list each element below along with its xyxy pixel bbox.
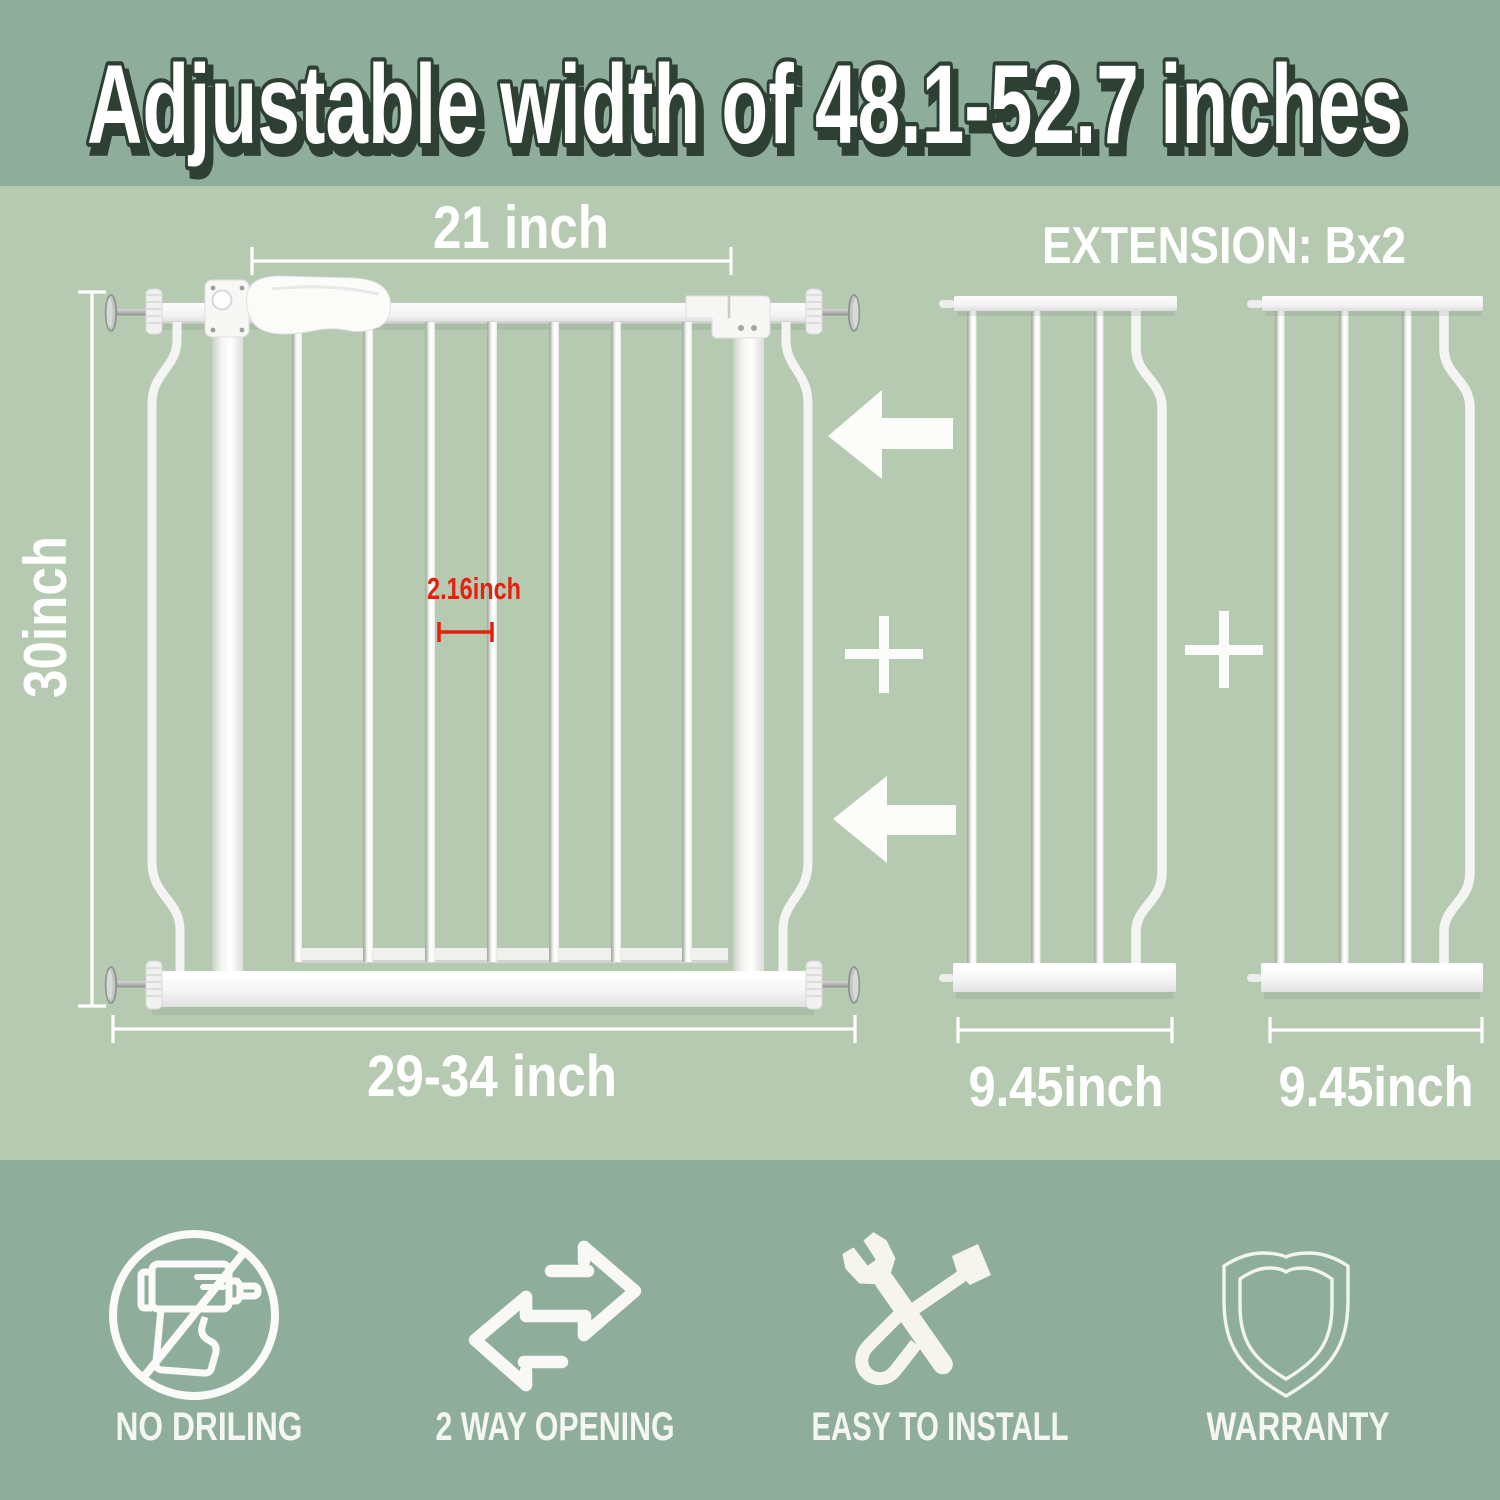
- svg-text:9.45inch: 9.45inch: [1279, 1055, 1474, 1119]
- svg-text:2.16inch: 2.16inch: [427, 571, 521, 606]
- svg-text:30inch: 30inch: [12, 536, 79, 698]
- svg-text:EXTENSION: Bx2: EXTENSION: Bx2: [1042, 217, 1406, 275]
- svg-text:EASY TO INSTALL: EASY TO INSTALL: [812, 1405, 1069, 1449]
- svg-text:WARRANTY: WARRANTY: [1207, 1405, 1390, 1449]
- svg-text:NO DRILING: NO DRILING: [116, 1405, 303, 1449]
- svg-text:29-34 inch: 29-34 inch: [367, 1044, 617, 1109]
- svg-text:9.45inch: 9.45inch: [969, 1055, 1164, 1119]
- svg-text:Adjustable width of 48.1-52.7: Adjustable width of 48.1-52.7 inches: [87, 42, 1403, 167]
- svg-text:21 inch: 21 inch: [433, 194, 609, 261]
- svg-text:2 WAY OPENING: 2 WAY OPENING: [436, 1405, 675, 1449]
